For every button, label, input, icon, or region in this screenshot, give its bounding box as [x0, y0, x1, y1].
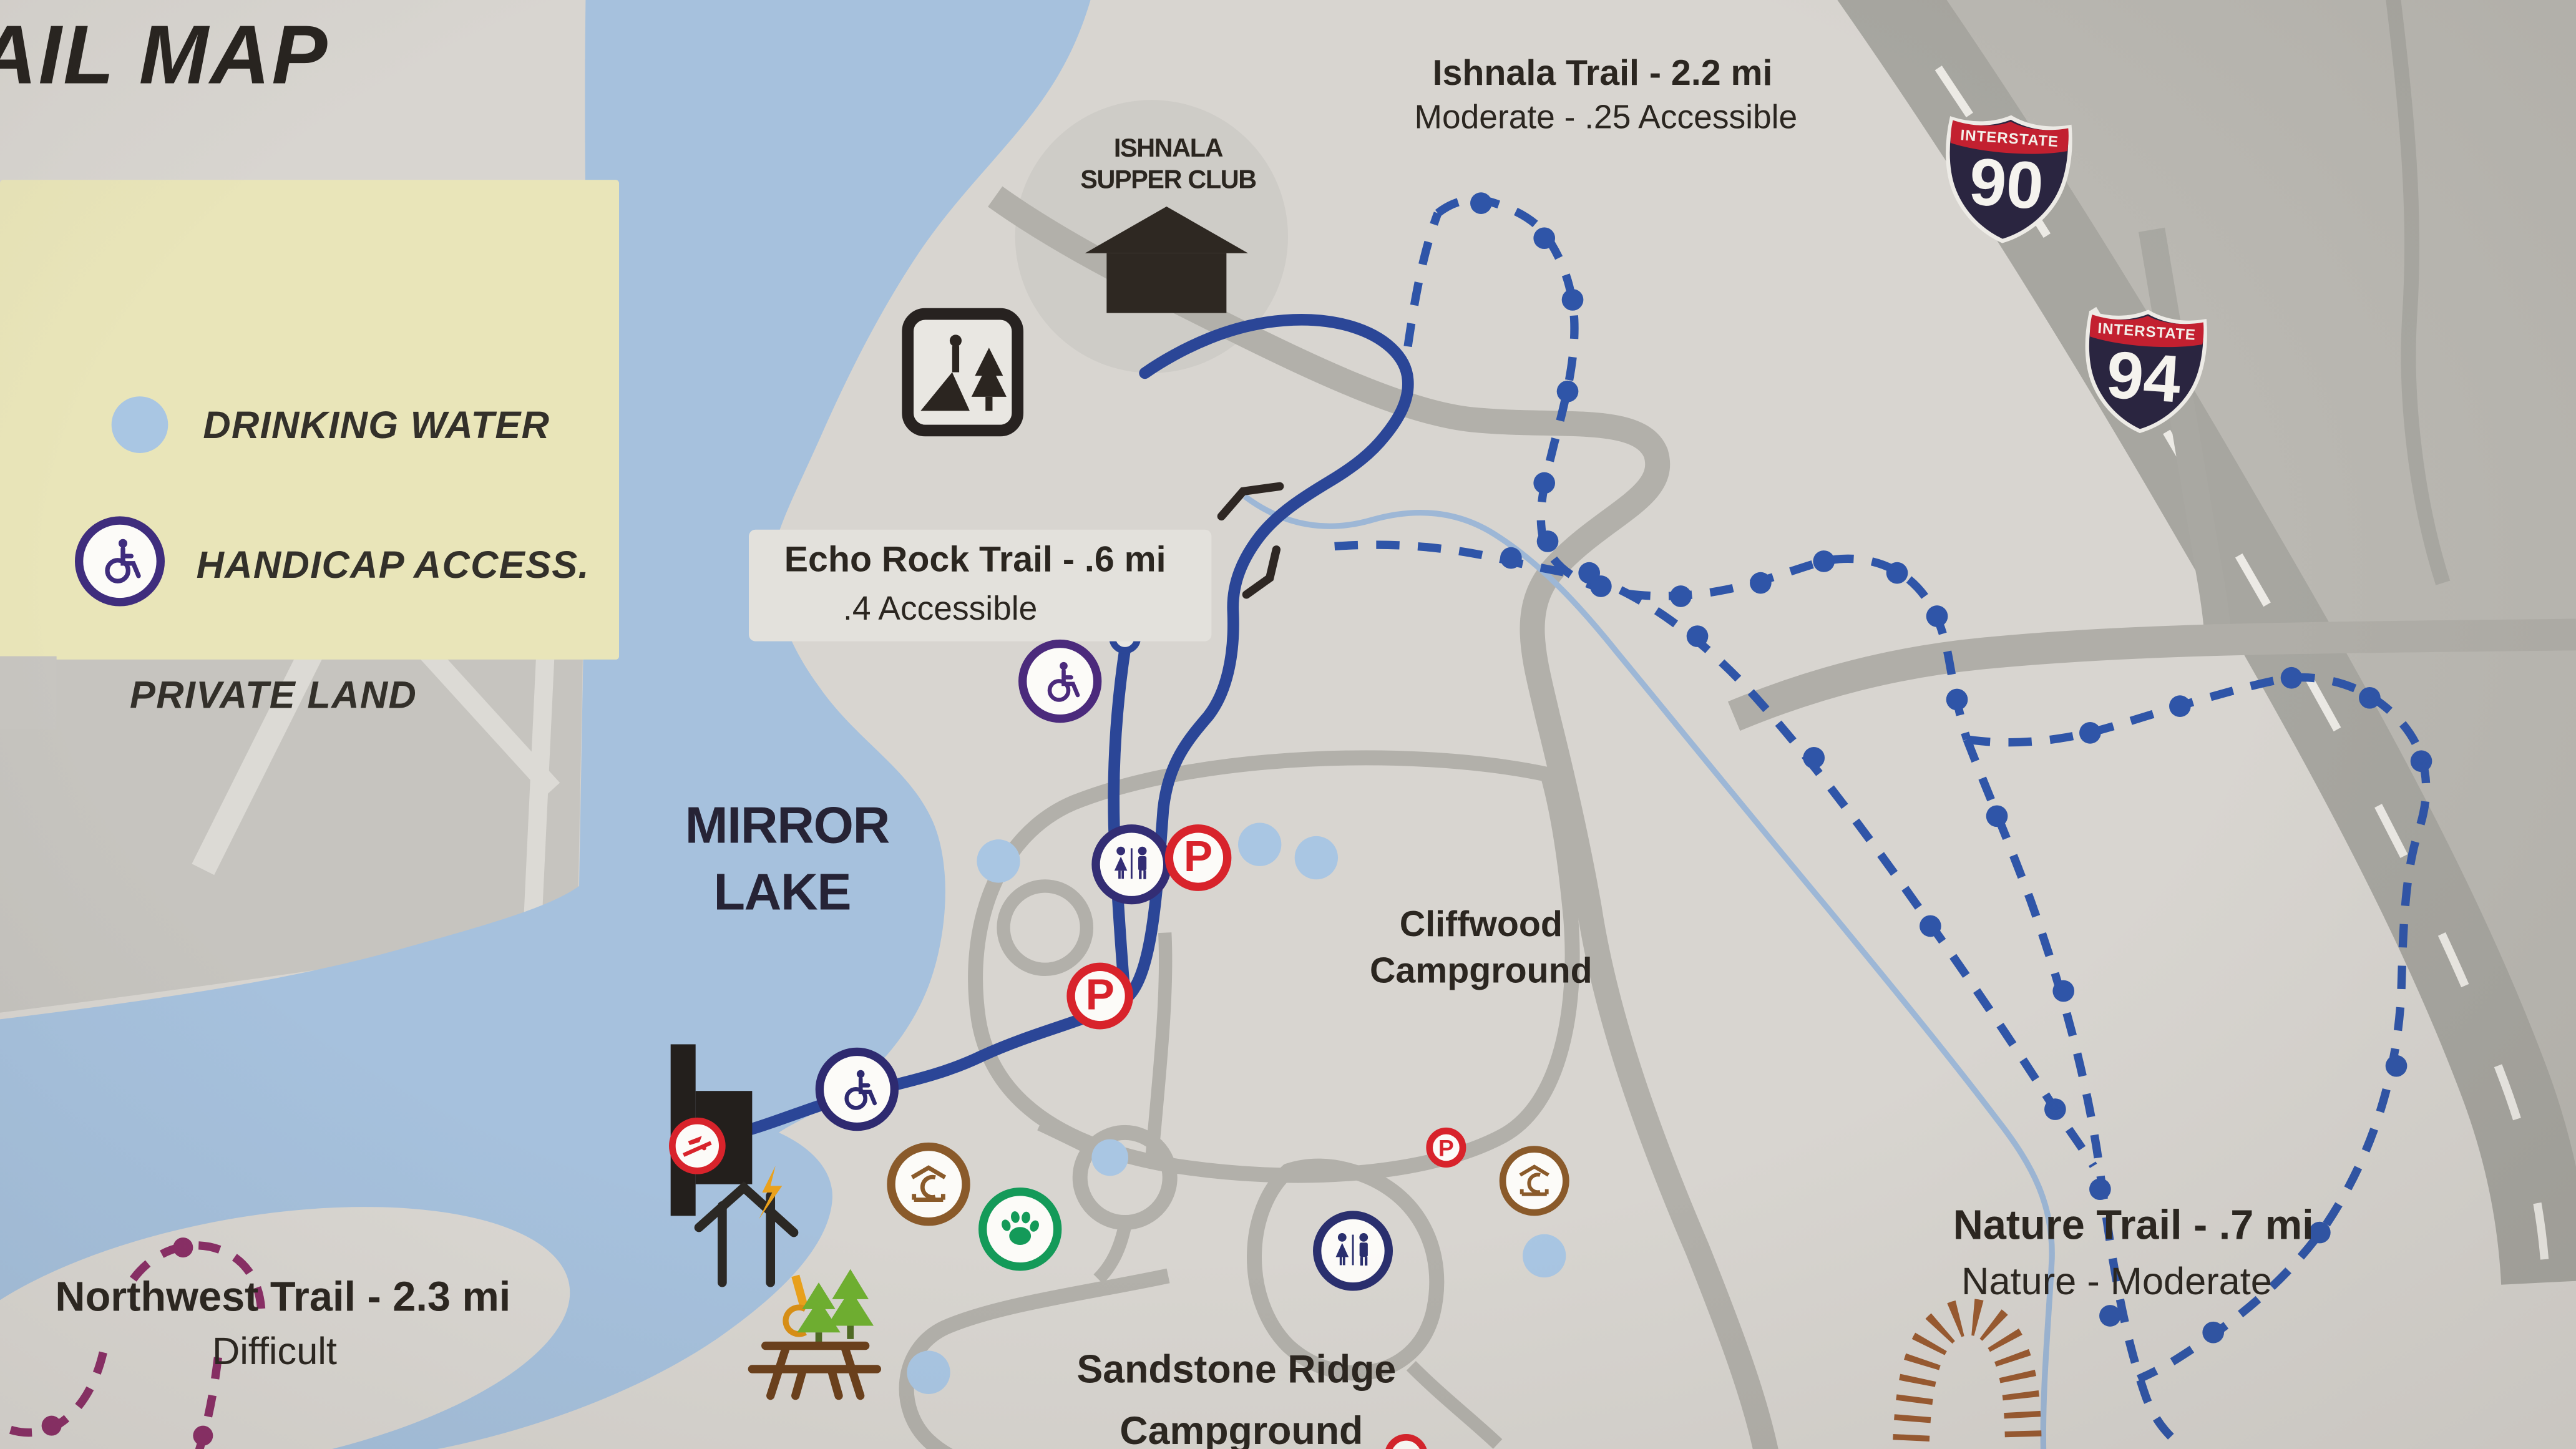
interstate-90-shield: INTERSTATE 90: [1934, 102, 2080, 251]
nature-trail-label: Nature Trail - .7 mi: [1953, 1204, 2314, 1247]
building-glyph: [1085, 207, 1248, 313]
cliffwood-label: Cliffwood: [1400, 906, 1563, 944]
supper-club-label: SUPPER CLUB: [1080, 168, 1256, 195]
shelter-icon: [887, 1143, 970, 1226]
northwest-trail-sublabel: Difficult: [212, 1332, 337, 1372]
handicap-access-icon: [1018, 640, 1101, 723]
handicap-access-icon: [75, 516, 165, 606]
cliffwood-label: Campground: [1370, 953, 1593, 990]
legend: DRINKING WATER HANDICAP ACCESS. PRIVATE …: [0, 180, 619, 660]
shelter-icon: [1500, 1146, 1569, 1216]
trail-map: AIL MAP DRINKING WATER HANDICAP ACCESS. …: [0, 0, 2576, 1449]
parking-icon: [1388, 1437, 1425, 1449]
legend-label: PRIVATE LAND: [130, 673, 417, 718]
supper-club-building-icon: [1085, 207, 1248, 313]
overlook-sign-icon: [902, 308, 1023, 437]
pet-area-paw-icon: [978, 1188, 1061, 1271]
echo-rock-label: Echo Rock Trail - .6 mi: [784, 541, 1166, 578]
shield-number: 94: [2076, 338, 2212, 422]
private-land-swatch: [0, 656, 57, 729]
northwest-trail-label: Northwest Trail - 2.3 mi: [55, 1276, 510, 1319]
legend-label: HANDICAP ACCESS.: [197, 543, 590, 588]
supper-club-label: ISHNALA: [1114, 137, 1222, 163]
handicap-access-icon: [816, 1048, 899, 1131]
legend-label: DRINKING WATER: [203, 403, 550, 448]
map-title: AIL MAP: [0, 7, 329, 104]
nature-trail-sublabel: Nature - Moderate: [1961, 1262, 2272, 1302]
parking-icon: P: [1165, 824, 1232, 891]
ishnala-trail-sublabel: Moderate - .25 Accessible: [1415, 102, 1798, 137]
mirror-lake-label: LAKE: [713, 866, 851, 920]
wheelchair-glyph: [95, 536, 145, 586]
restroom-icon: [1091, 824, 1171, 904]
ishnala-trail-label: Ishnala Trail - 2.2 mi: [1433, 55, 1773, 92]
sandstone-label: Sandstone Ridge: [1076, 1349, 1396, 1390]
drinking-water-dot: [107, 393, 173, 460]
shield-number: 90: [1936, 144, 2077, 228]
sandstone-label: Campground: [1120, 1411, 1363, 1449]
overlook-glyph: [914, 320, 1012, 424]
restroom-icon: [1313, 1211, 1393, 1290]
interstate-94-shield: INTERSTATE 94: [2074, 297, 2214, 441]
mirror-lake-label: MIRROR: [685, 799, 889, 853]
parking-icon: P: [1066, 963, 1133, 1030]
echo-rock-sublabel: .4 Accessible: [843, 593, 1037, 628]
boat-launch-icon: [669, 1118, 726, 1174]
parking-icon: P: [1426, 1128, 1466, 1168]
